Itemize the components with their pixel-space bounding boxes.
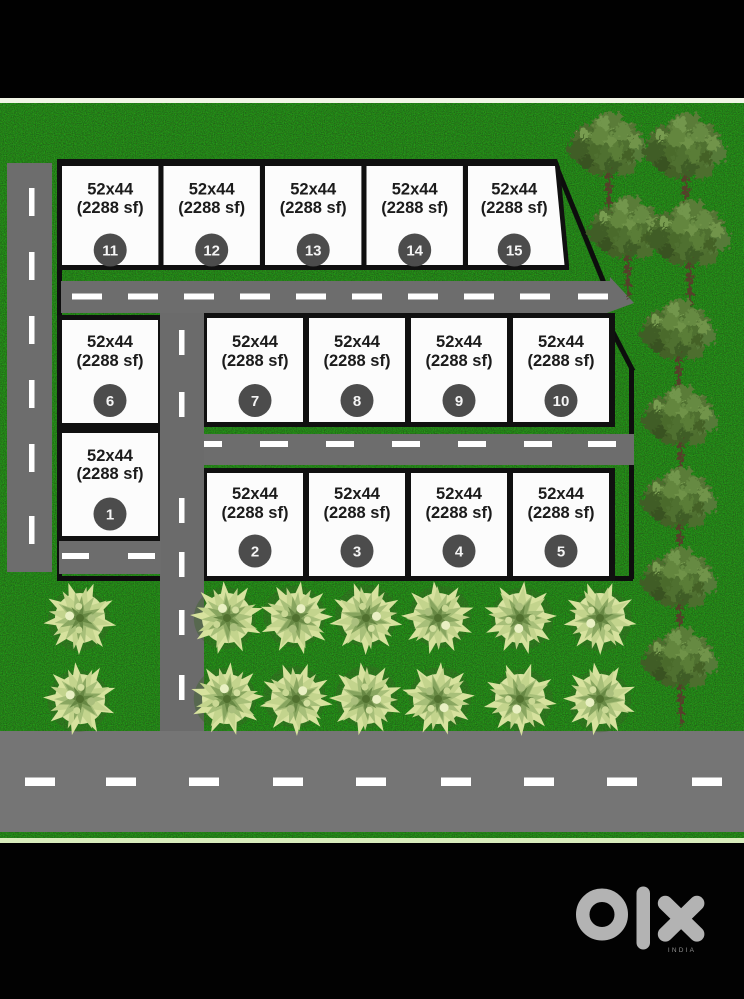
svg-text:13: 13 (305, 243, 322, 260)
svg-text:52x44: 52x44 (436, 485, 483, 503)
svg-text:(2288 sf): (2288 sf) (77, 465, 144, 483)
svg-text:52x44: 52x44 (290, 181, 337, 199)
svg-text:9: 9 (455, 393, 463, 410)
svg-text:2: 2 (251, 544, 259, 561)
svg-text:1: 1 (106, 507, 114, 524)
svg-text:15: 15 (506, 243, 523, 260)
svg-text:8: 8 (353, 393, 361, 410)
svg-text:(2288 sf): (2288 sf) (426, 504, 493, 522)
svg-text:52x44: 52x44 (538, 333, 585, 351)
svg-text:(2288 sf): (2288 sf) (426, 352, 493, 370)
svg-text:4: 4 (455, 544, 464, 561)
svg-text:52x44: 52x44 (436, 333, 483, 351)
svg-text:7: 7 (251, 393, 259, 410)
svg-text:(2288 sf): (2288 sf) (77, 199, 144, 217)
svg-text:52x44: 52x44 (87, 333, 134, 351)
svg-text:(2288 sf): (2288 sf) (528, 352, 595, 370)
svg-text:INDIA: INDIA (668, 947, 696, 954)
svg-text:(2288 sf): (2288 sf) (280, 199, 347, 217)
svg-text:(2288 sf): (2288 sf) (381, 199, 448, 217)
svg-text:(2288 sf): (2288 sf) (77, 352, 144, 370)
svg-text:(2288 sf): (2288 sf) (222, 504, 289, 522)
svg-text:52x44: 52x44 (232, 333, 279, 351)
svg-text:14: 14 (406, 243, 423, 260)
svg-text:52x44: 52x44 (334, 333, 381, 351)
svg-text:(2288 sf): (2288 sf) (481, 199, 548, 217)
svg-text:52x44: 52x44 (87, 181, 134, 199)
svg-text:(2288 sf): (2288 sf) (222, 352, 289, 370)
svg-text:11: 11 (102, 243, 118, 260)
svg-text:52x44: 52x44 (189, 181, 236, 199)
svg-text:52x44: 52x44 (232, 485, 279, 503)
svg-text:52x44: 52x44 (491, 181, 538, 199)
svg-text:12: 12 (203, 243, 220, 260)
svg-text:(2288 sf): (2288 sf) (178, 199, 245, 217)
svg-text:6: 6 (106, 393, 114, 410)
svg-text:52x44: 52x44 (392, 181, 439, 199)
svg-text:(2288 sf): (2288 sf) (324, 504, 391, 522)
svg-text:(2288 sf): (2288 sf) (528, 504, 595, 522)
svg-text:52x44: 52x44 (538, 485, 585, 503)
svg-text:(2288 sf): (2288 sf) (324, 352, 391, 370)
svg-text:52x44: 52x44 (334, 485, 381, 503)
svg-text:3: 3 (353, 544, 361, 561)
svg-text:52x44: 52x44 (87, 447, 134, 465)
svg-text:5: 5 (557, 544, 565, 561)
svg-text:10: 10 (553, 393, 570, 410)
